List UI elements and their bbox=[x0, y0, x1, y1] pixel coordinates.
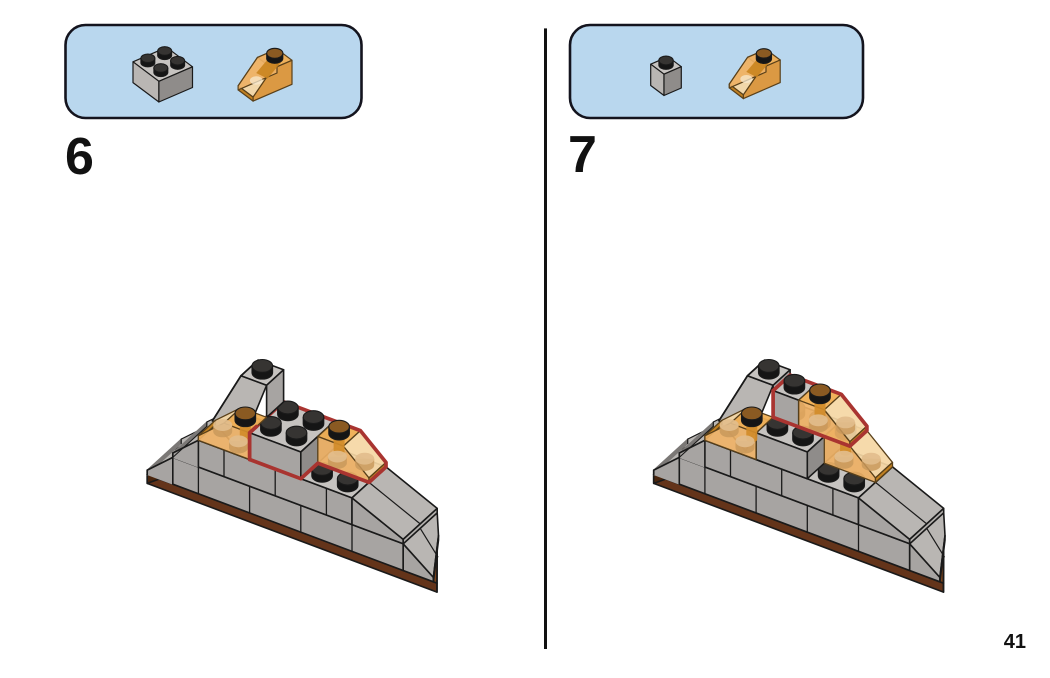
svg-text:6: 6 bbox=[65, 128, 94, 186]
svg-text:41: 41 bbox=[1004, 631, 1026, 653]
svg-text:7: 7 bbox=[568, 126, 597, 184]
